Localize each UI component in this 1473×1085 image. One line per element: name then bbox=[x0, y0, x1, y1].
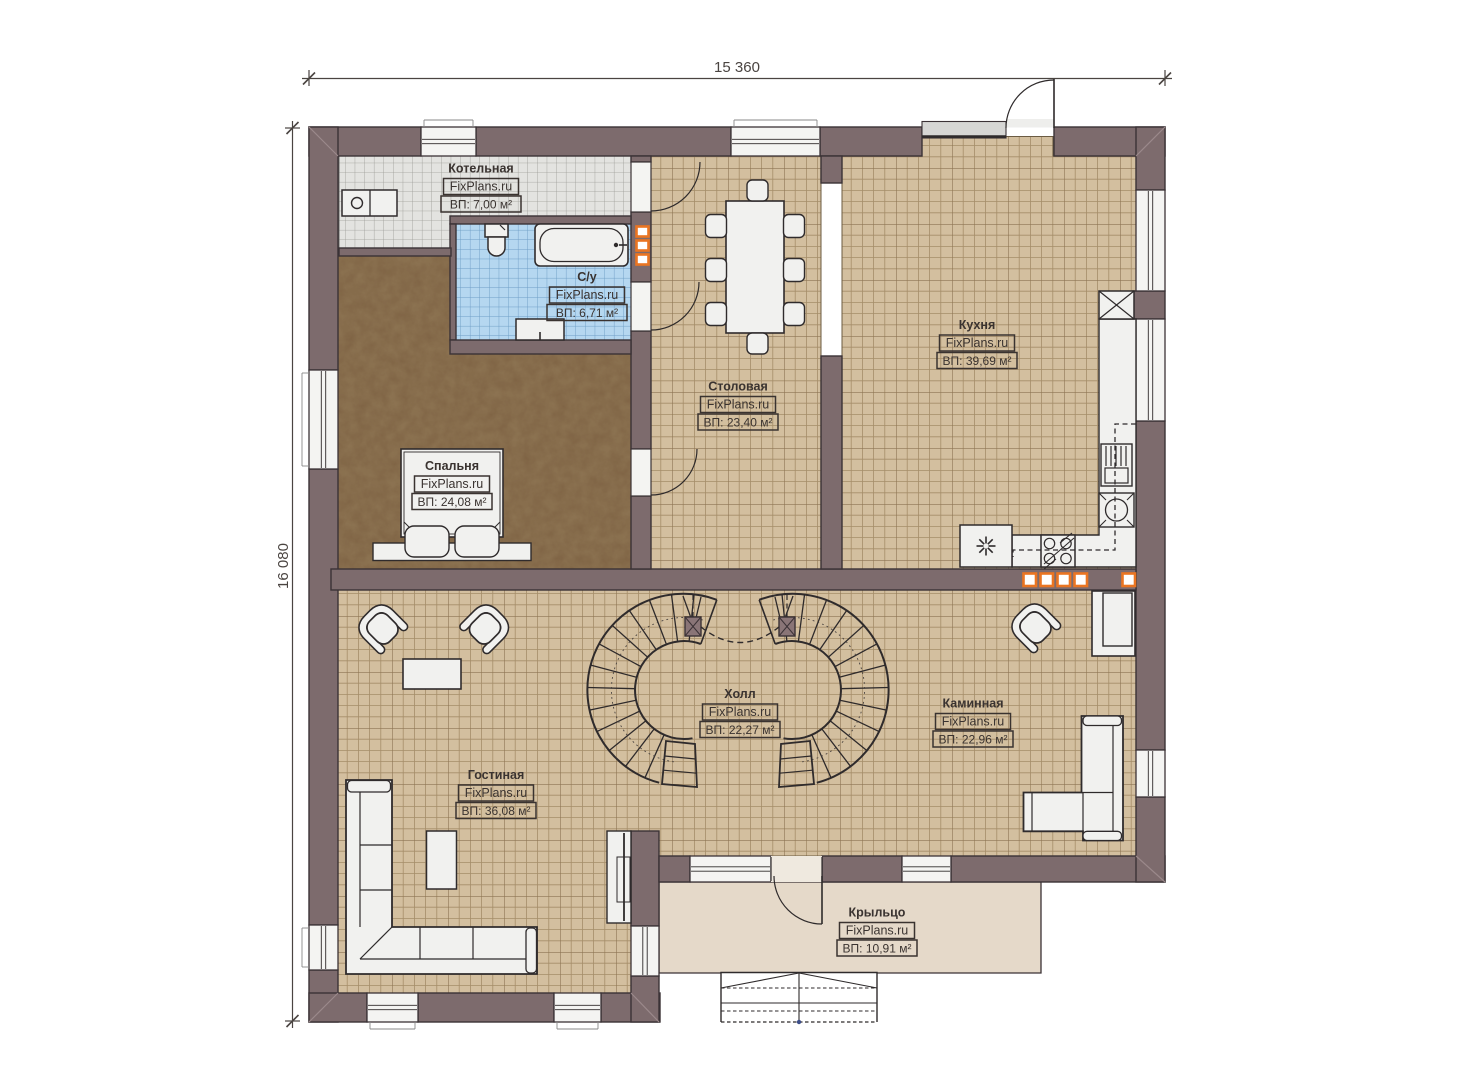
svg-text:FixPlans.ru: FixPlans.ru bbox=[846, 924, 909, 938]
svg-text:ВП: 22,96 м²: ВП: 22,96 м² bbox=[939, 733, 1008, 747]
svg-text:Холл: Холл bbox=[724, 687, 755, 701]
svg-text:Гостиная: Гостиная bbox=[468, 768, 525, 782]
svg-text:ВП: 22,27 м²: ВП: 22,27 м² bbox=[706, 723, 775, 737]
svg-text:ВП: 23,40 м²: ВП: 23,40 м² bbox=[704, 416, 773, 430]
svg-text:ВП: 6,71 м²: ВП: 6,71 м² bbox=[556, 306, 618, 320]
svg-text:FixPlans.ru: FixPlans.ru bbox=[421, 477, 484, 491]
svg-text:FixPlans.ru: FixPlans.ru bbox=[556, 288, 619, 302]
svg-text:FixPlans.ru: FixPlans.ru bbox=[450, 180, 513, 194]
svg-text:FixPlans.ru: FixPlans.ru bbox=[465, 786, 528, 800]
svg-text:Кухня: Кухня bbox=[959, 318, 996, 332]
svg-text:Каминная: Каминная bbox=[942, 697, 1003, 711]
svg-text:Спальня: Спальня bbox=[425, 459, 479, 473]
svg-text:С/у: С/у bbox=[577, 270, 597, 284]
svg-text:16 080: 16 080 bbox=[275, 543, 292, 589]
svg-text:FixPlans.ru: FixPlans.ru bbox=[942, 715, 1005, 729]
svg-text:Столовая: Столовая bbox=[708, 380, 768, 394]
svg-text:Крыльцо: Крыльцо bbox=[849, 906, 906, 920]
svg-text:ВП: 7,00 м²: ВП: 7,00 м² bbox=[450, 198, 512, 212]
svg-text:ВП: 39,69 м²: ВП: 39,69 м² bbox=[943, 354, 1012, 368]
svg-text:ВП: 10,91 м²: ВП: 10,91 м² bbox=[843, 942, 912, 956]
svg-text:FixPlans.ru: FixPlans.ru bbox=[707, 398, 770, 412]
svg-text:ВП: 24,08 м²: ВП: 24,08 м² bbox=[418, 495, 487, 509]
svg-text:Котельная: Котельная bbox=[448, 162, 513, 176]
svg-text:FixPlans.ru: FixPlans.ru bbox=[946, 336, 1009, 350]
svg-text:FixPlans.ru: FixPlans.ru bbox=[709, 705, 772, 719]
svg-text:15 360: 15 360 bbox=[714, 59, 760, 76]
svg-text:ВП: 36,08 м²: ВП: 36,08 м² bbox=[462, 804, 531, 818]
